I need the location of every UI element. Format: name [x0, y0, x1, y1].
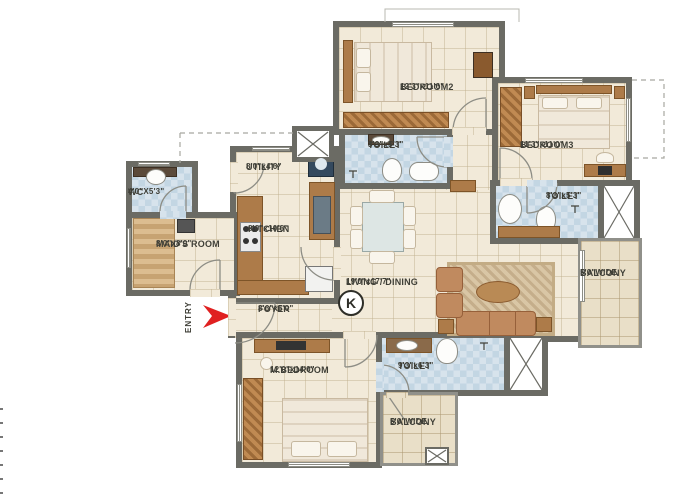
window-bedroom3-top [525, 78, 583, 83]
window-wc [138, 162, 170, 166]
label-bedroom2-dims: 12'3"x11'6" [400, 82, 444, 91]
compass-k-icon: K [338, 290, 364, 316]
window-m-bedroom [237, 384, 242, 442]
entry-arrow-icon [203, 305, 231, 328]
door-gap-utility [230, 162, 238, 192]
door-toilet-top [417, 137, 447, 167]
door-gap-balcony-bottom [386, 392, 408, 398]
door-gap-bedroom2 [452, 127, 486, 135]
window-utility [252, 147, 290, 151]
door-balcony-bottom [389, 397, 404, 419]
window-bedroom2 [392, 22, 454, 27]
label-m-bedroom-dims: 12'0"x14'0" [270, 365, 315, 374]
door-gap-wc [160, 211, 186, 219]
shower-marks [349, 171, 579, 350]
dashed-bedroom3-right [632, 80, 664, 158]
window-bedroom3-right [626, 98, 631, 142]
label-balcony-right-dims: 5'0"WIDE [580, 268, 617, 277]
door-gap-toilet-right [527, 180, 557, 187]
door-gap-entry [228, 298, 236, 336]
door-m-bedroom [345, 335, 377, 367]
label-maids-dims: 8'0"x8'0" [156, 239, 191, 248]
label-toilet-right-dims: 8'3"x5'3" [546, 191, 581, 200]
shaft-kitchen-x-icon [298, 132, 328, 156]
door-gap-toilet-bottom [376, 362, 384, 392]
shower-icon-toilet-top [349, 171, 357, 178]
door-arcs [160, 98, 557, 419]
door-gap-toilet-top [444, 137, 453, 167]
door-bedroom3 [500, 148, 532, 180]
label-bedroom3-dims: 11'3"x11'0" [520, 140, 564, 149]
door-gap-m-bedroom [343, 331, 376, 339]
label-balcony-bottom-dims: 5'0"WIDE [390, 417, 427, 426]
label-utility-dims: 8'0"x4'6" [246, 162, 281, 171]
shaft-right-x-icon [604, 186, 634, 238]
door-kitchen [301, 247, 334, 280]
shaft-bottom-x-icon [510, 338, 542, 390]
label-toilet-bottom-dims: 9'3"x6'3" [398, 361, 433, 370]
door-maids [190, 260, 220, 290]
entry-label: ENTRY [184, 294, 198, 340]
floor-plan: BEDROOM2 12'3"x11'6" BEDROOM3 11'3"x11'0… [0, 0, 700, 500]
label-wc-dims: 4'0"X5'3" [128, 187, 164, 196]
label-kitchen-dims: 8'0"x10'6" [248, 224, 288, 233]
label-toilet-top-dims: 8'3"x5'3" [368, 140, 403, 149]
window-m-bedroom-bottom [288, 462, 350, 467]
shower-icon-toilet-bottom [480, 343, 488, 350]
door-gap-kitchen [333, 247, 341, 280]
terrace-outline [385, 9, 519, 22]
shaft-box-x-icon [428, 450, 446, 462]
window-maids [127, 228, 131, 268]
label-foyer-dims: 8'6"x5'0" [258, 304, 293, 313]
label-living-dims: 19'0"x17'7" [346, 277, 391, 286]
shower-icon-toilet-right [571, 206, 579, 213]
plan-annotations [0, 0, 700, 500]
